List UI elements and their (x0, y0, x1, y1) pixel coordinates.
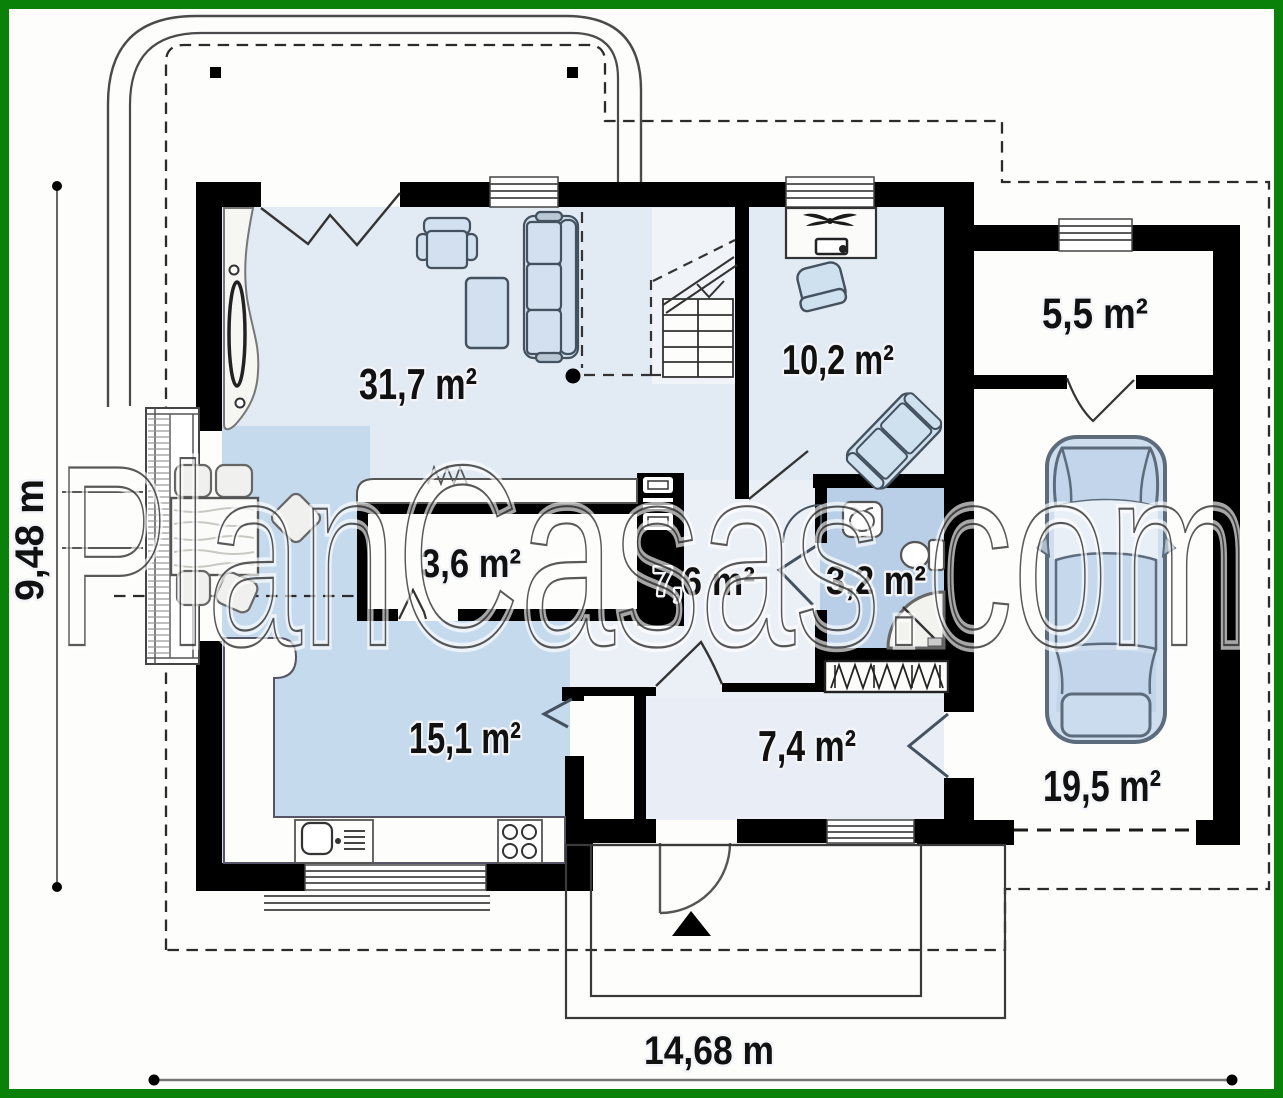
svg-text:31,7 m²: 31,7 m² (359, 360, 477, 409)
svg-text:19,5 m²: 19,5 m² (1043, 762, 1161, 811)
svg-text:15,1 m²: 15,1 m² (409, 714, 521, 763)
svg-text:14,68 m: 14,68 m (644, 1029, 774, 1073)
svg-text:PlanCasas.com: PlanCasas.com (55, 411, 1250, 700)
svg-text:5,5 m²: 5,5 m² (1042, 290, 1148, 338)
svg-text:9,48 m: 9,48 m (8, 479, 52, 601)
svg-text:7,4 m²: 7,4 m² (758, 722, 856, 771)
svg-text:10,2 m²: 10,2 m² (782, 336, 894, 383)
